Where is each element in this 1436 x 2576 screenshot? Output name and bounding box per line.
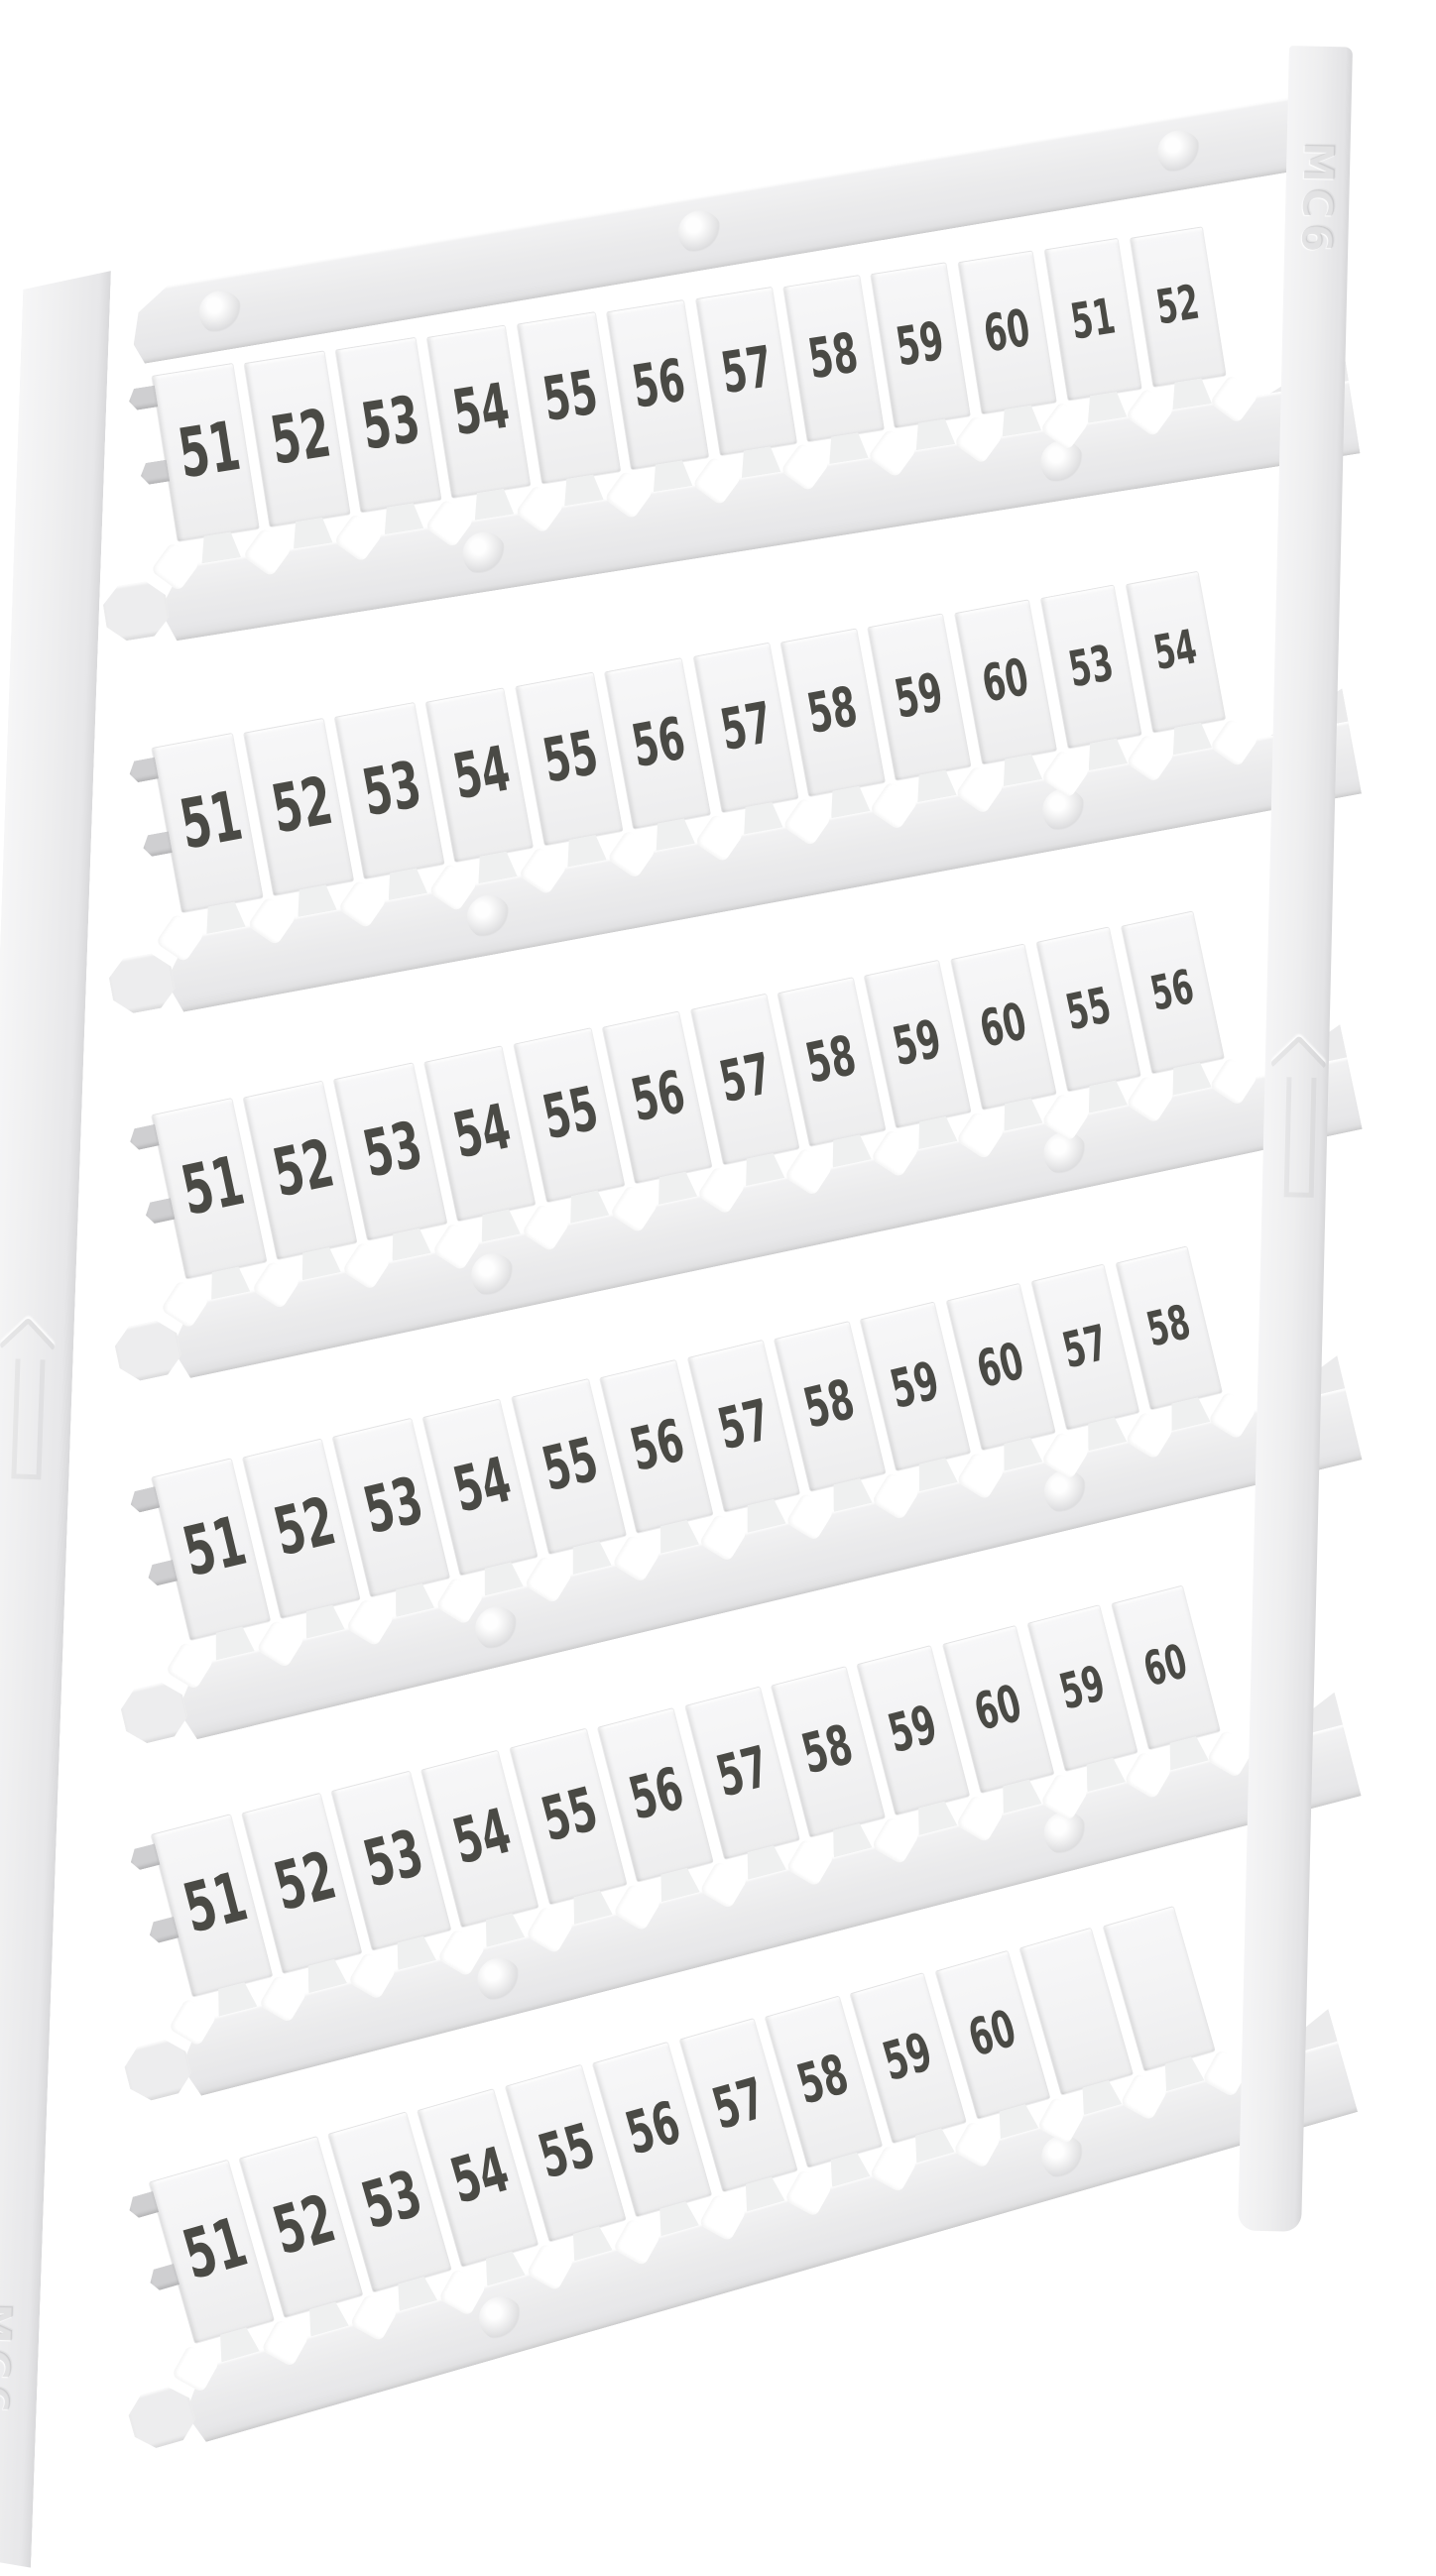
marker-number: 57 [713, 1041, 775, 1115]
marker-number: 56 [619, 2088, 685, 2167]
marker-tag: 56 [1120, 910, 1224, 1075]
marker-tag: 56 [606, 298, 709, 470]
up-arrow-emboss-left-icon [0, 1319, 59, 1489]
marker-number: 55 [537, 1074, 600, 1153]
marker-number: 55 [532, 2111, 599, 2192]
ejector-dimple [474, 2291, 528, 2345]
marker-number: 59 [882, 1694, 943, 1765]
marker-tag: 51 [1043, 238, 1141, 402]
ejector-dimple [675, 207, 726, 258]
marker-number: 53 [357, 1817, 425, 1902]
ejector-dimple [473, 1953, 527, 2007]
marker-number: 56 [628, 346, 687, 421]
left-side-rail: MC6 [0, 268, 111, 2572]
marker-number: 51 [176, 1503, 245, 1592]
marker-number: 52 [266, 395, 329, 479]
marker-number: 52 [267, 1837, 336, 1926]
marker-number: 53 [357, 749, 420, 831]
marker-number: 56 [627, 704, 688, 780]
marker-tag: 52 [243, 350, 351, 527]
marker-number: 55 [1059, 976, 1117, 1042]
hex-connector [124, 2382, 200, 2452]
marker-number: 55 [536, 1425, 601, 1505]
embossed-code-left: MC6 [0, 2285, 19, 2435]
marker-number: 52 [266, 762, 330, 848]
sprue-pin [147, 1917, 179, 1944]
marker-number: 60 [967, 1674, 1027, 1743]
sprue-pin [126, 2191, 159, 2220]
sprue-pin [146, 1560, 178, 1587]
marker-number: 57 [710, 1734, 774, 1810]
marker-number: 57 [1055, 1313, 1115, 1379]
marker-tag: 57 [694, 287, 796, 456]
embossed-code-right: MC6 [1294, 124, 1342, 274]
marker-number: 60 [970, 1332, 1030, 1401]
marker-number: 51 [1065, 287, 1121, 351]
marker-number: 57 [715, 690, 776, 763]
sprue-pin [128, 1843, 161, 1871]
marker-number: 53 [1062, 634, 1119, 699]
hex-connector [106, 950, 179, 1016]
marker-tag: 51 [151, 363, 260, 542]
marker-tag: 54 [424, 687, 534, 864]
marker-number: 60 [976, 647, 1033, 715]
marker-number: 53 [357, 1464, 424, 1549]
marker-tag: 53 [1039, 584, 1141, 749]
marker-number: 54 [447, 1445, 514, 1527]
marker-number: 56 [624, 1406, 688, 1484]
hex-connector [100, 579, 172, 644]
ejector-dimple [471, 1602, 524, 1655]
marker-tag: 52 [1129, 226, 1226, 388]
marker-tag: 59 [867, 613, 971, 780]
arrow-shaft [11, 1358, 45, 1479]
marker-number: 55 [538, 719, 600, 797]
marker-number: 57 [705, 2066, 771, 2143]
sprue-pin [141, 831, 173, 858]
marker-number: 60 [1136, 1634, 1194, 1698]
marker-number: 52 [267, 1125, 333, 1212]
marker-tag: 51 [151, 733, 264, 913]
marker-number: 53 [357, 383, 419, 464]
marker-tag: 55 [515, 672, 623, 847]
sprue-pin [139, 460, 170, 486]
arrow-shaft [1284, 1077, 1317, 1198]
ejector-dimple [467, 1249, 519, 1301]
marker-number: 58 [801, 1024, 862, 1097]
marker-tag: 54 [425, 324, 531, 499]
up-arrow-emboss-right-icon [1265, 1037, 1329, 1207]
marker-number: 55 [535, 1775, 601, 1855]
marker-tag: 55 [516, 311, 620, 485]
marker-number: 59 [892, 310, 948, 379]
marker-tag: 56 [604, 657, 711, 830]
marker-number: 54 [447, 734, 510, 814]
marker-tag: 53 [335, 337, 442, 514]
marker-number: 58 [798, 1368, 860, 1442]
marker-tag: 54 [1125, 570, 1226, 734]
ejector-dimple [1154, 127, 1205, 177]
marker-number: 52 [265, 2181, 335, 2270]
marker-tag: 59 [871, 262, 971, 428]
marker-number: 58 [796, 1713, 859, 1787]
marker-number: 52 [267, 1483, 335, 1571]
marker-number: 55 [538, 358, 599, 435]
marker-tag: 60 [957, 250, 1056, 415]
marker-number: 60 [961, 1999, 1023, 2069]
marker-number: 58 [1139, 1295, 1197, 1358]
ejector-dimple [459, 528, 509, 578]
sprue-pin [127, 386, 158, 411]
marker-number: 56 [1143, 960, 1200, 1023]
marker-number: 54 [1147, 620, 1203, 682]
marker-tag: 58 [782, 274, 884, 442]
marker-number: 51 [174, 408, 237, 494]
ejector-dimple [195, 288, 246, 338]
marker-number: 60 [979, 298, 1035, 365]
hex-connector [117, 1679, 191, 1747]
marker-number: 51 [176, 2205, 247, 2295]
marker-number: 60 [974, 992, 1032, 1060]
marker-number: 59 [890, 661, 948, 731]
marker-number: 54 [447, 1092, 512, 1173]
marker-number: 51 [175, 1143, 242, 1231]
marker-number: 54 [443, 2135, 512, 2218]
marker-number: 59 [877, 2021, 940, 2093]
sprue-pin [128, 1486, 160, 1514]
marker-number: 51 [175, 777, 240, 865]
marker-number: 51 [177, 1859, 247, 1949]
marker-number: 57 [716, 334, 775, 407]
marker-card-photo: MC6 MC6 51525354555657585960515251525354… [0, 0, 1436, 2576]
marker-number: 53 [357, 1109, 422, 1192]
marker-number: 54 [448, 371, 510, 450]
sprue-pin [147, 2264, 179, 2292]
marker-number: 59 [888, 1008, 947, 1079]
marker-number: 58 [803, 675, 863, 747]
marker-number: 59 [885, 1349, 946, 1421]
marker-number: 56 [623, 1754, 688, 1832]
marker-number: 58 [791, 2044, 856, 2118]
hex-connector [111, 1317, 184, 1384]
marker-number: 52 [1150, 276, 1205, 337]
marker-number: 54 [446, 1796, 514, 1878]
marker-number: 58 [804, 322, 862, 393]
marker-number: 53 [354, 2158, 423, 2243]
sprue-pin [144, 1198, 176, 1225]
marker-number: 59 [1052, 1654, 1112, 1721]
marker-tag: 53 [334, 702, 444, 879]
ejector-dimple [463, 891, 514, 942]
marker-number: 57 [712, 1387, 775, 1463]
sprue-pin [127, 758, 159, 784]
marker-tag: 60 [954, 599, 1057, 765]
marker-number: 56 [626, 1057, 688, 1134]
marker-tag: 57 [692, 643, 798, 814]
marker-tag: 52 [243, 717, 355, 896]
marker-tag: 58 [780, 628, 886, 797]
hex-connector [120, 2036, 195, 2105]
sprue-pin [128, 1124, 160, 1151]
